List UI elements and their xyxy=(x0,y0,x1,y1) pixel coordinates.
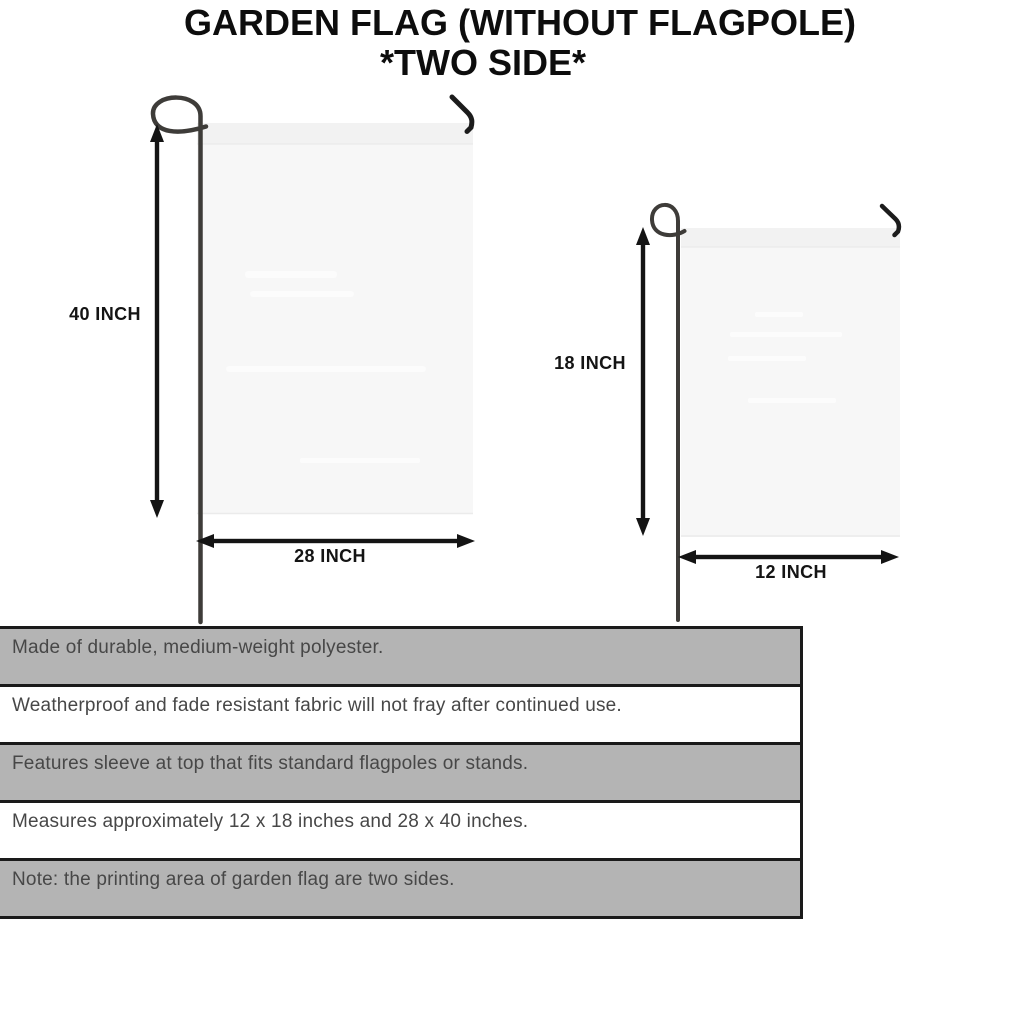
small-flag-sleeve xyxy=(681,228,900,247)
small-flag-fabric xyxy=(681,228,900,537)
small-flag-width-label: 12 INCH xyxy=(726,562,856,583)
feature-text: Note: the printing area of garden flag a… xyxy=(0,861,800,891)
feature-text: Features sleeve at top that fits standar… xyxy=(0,745,800,775)
large-flag-diagram xyxy=(150,97,475,622)
small-flag-pole xyxy=(652,205,685,620)
feature-row-weatherproof: Weatherproof and fade resistant fabric w… xyxy=(0,687,800,745)
large-flag-fabric xyxy=(197,123,473,514)
large-flag-height-label: 40 INCH xyxy=(40,304,170,325)
feature-row-measurements: Measures approximately 12 x 18 inches an… xyxy=(0,803,800,861)
small-flag-height-arrow xyxy=(636,227,650,536)
feature-row-material: Made of durable, medium-weight polyester… xyxy=(0,629,800,687)
features-table: Made of durable, medium-weight polyester… xyxy=(0,626,803,919)
small-flag-height-label: 18 INCH xyxy=(525,353,655,374)
small-flag-diagram xyxy=(636,205,900,620)
feature-row-note: Note: the printing area of garden flag a… xyxy=(0,861,800,916)
large-flag-width-label: 28 INCH xyxy=(265,546,395,567)
feature-text: Made of durable, medium-weight polyester… xyxy=(0,629,800,659)
large-flag-sleeve xyxy=(197,123,473,144)
feature-text: Measures approximately 12 x 18 inches an… xyxy=(0,803,800,833)
feature-text: Weatherproof and fade resistant fabric w… xyxy=(0,687,800,717)
product-infographic: GARDEN FLAG (WITHOUT FLAGPOLE) *TWO SIDE… xyxy=(0,0,1024,1024)
feature-row-sleeve: Features sleeve at top that fits standar… xyxy=(0,745,800,803)
